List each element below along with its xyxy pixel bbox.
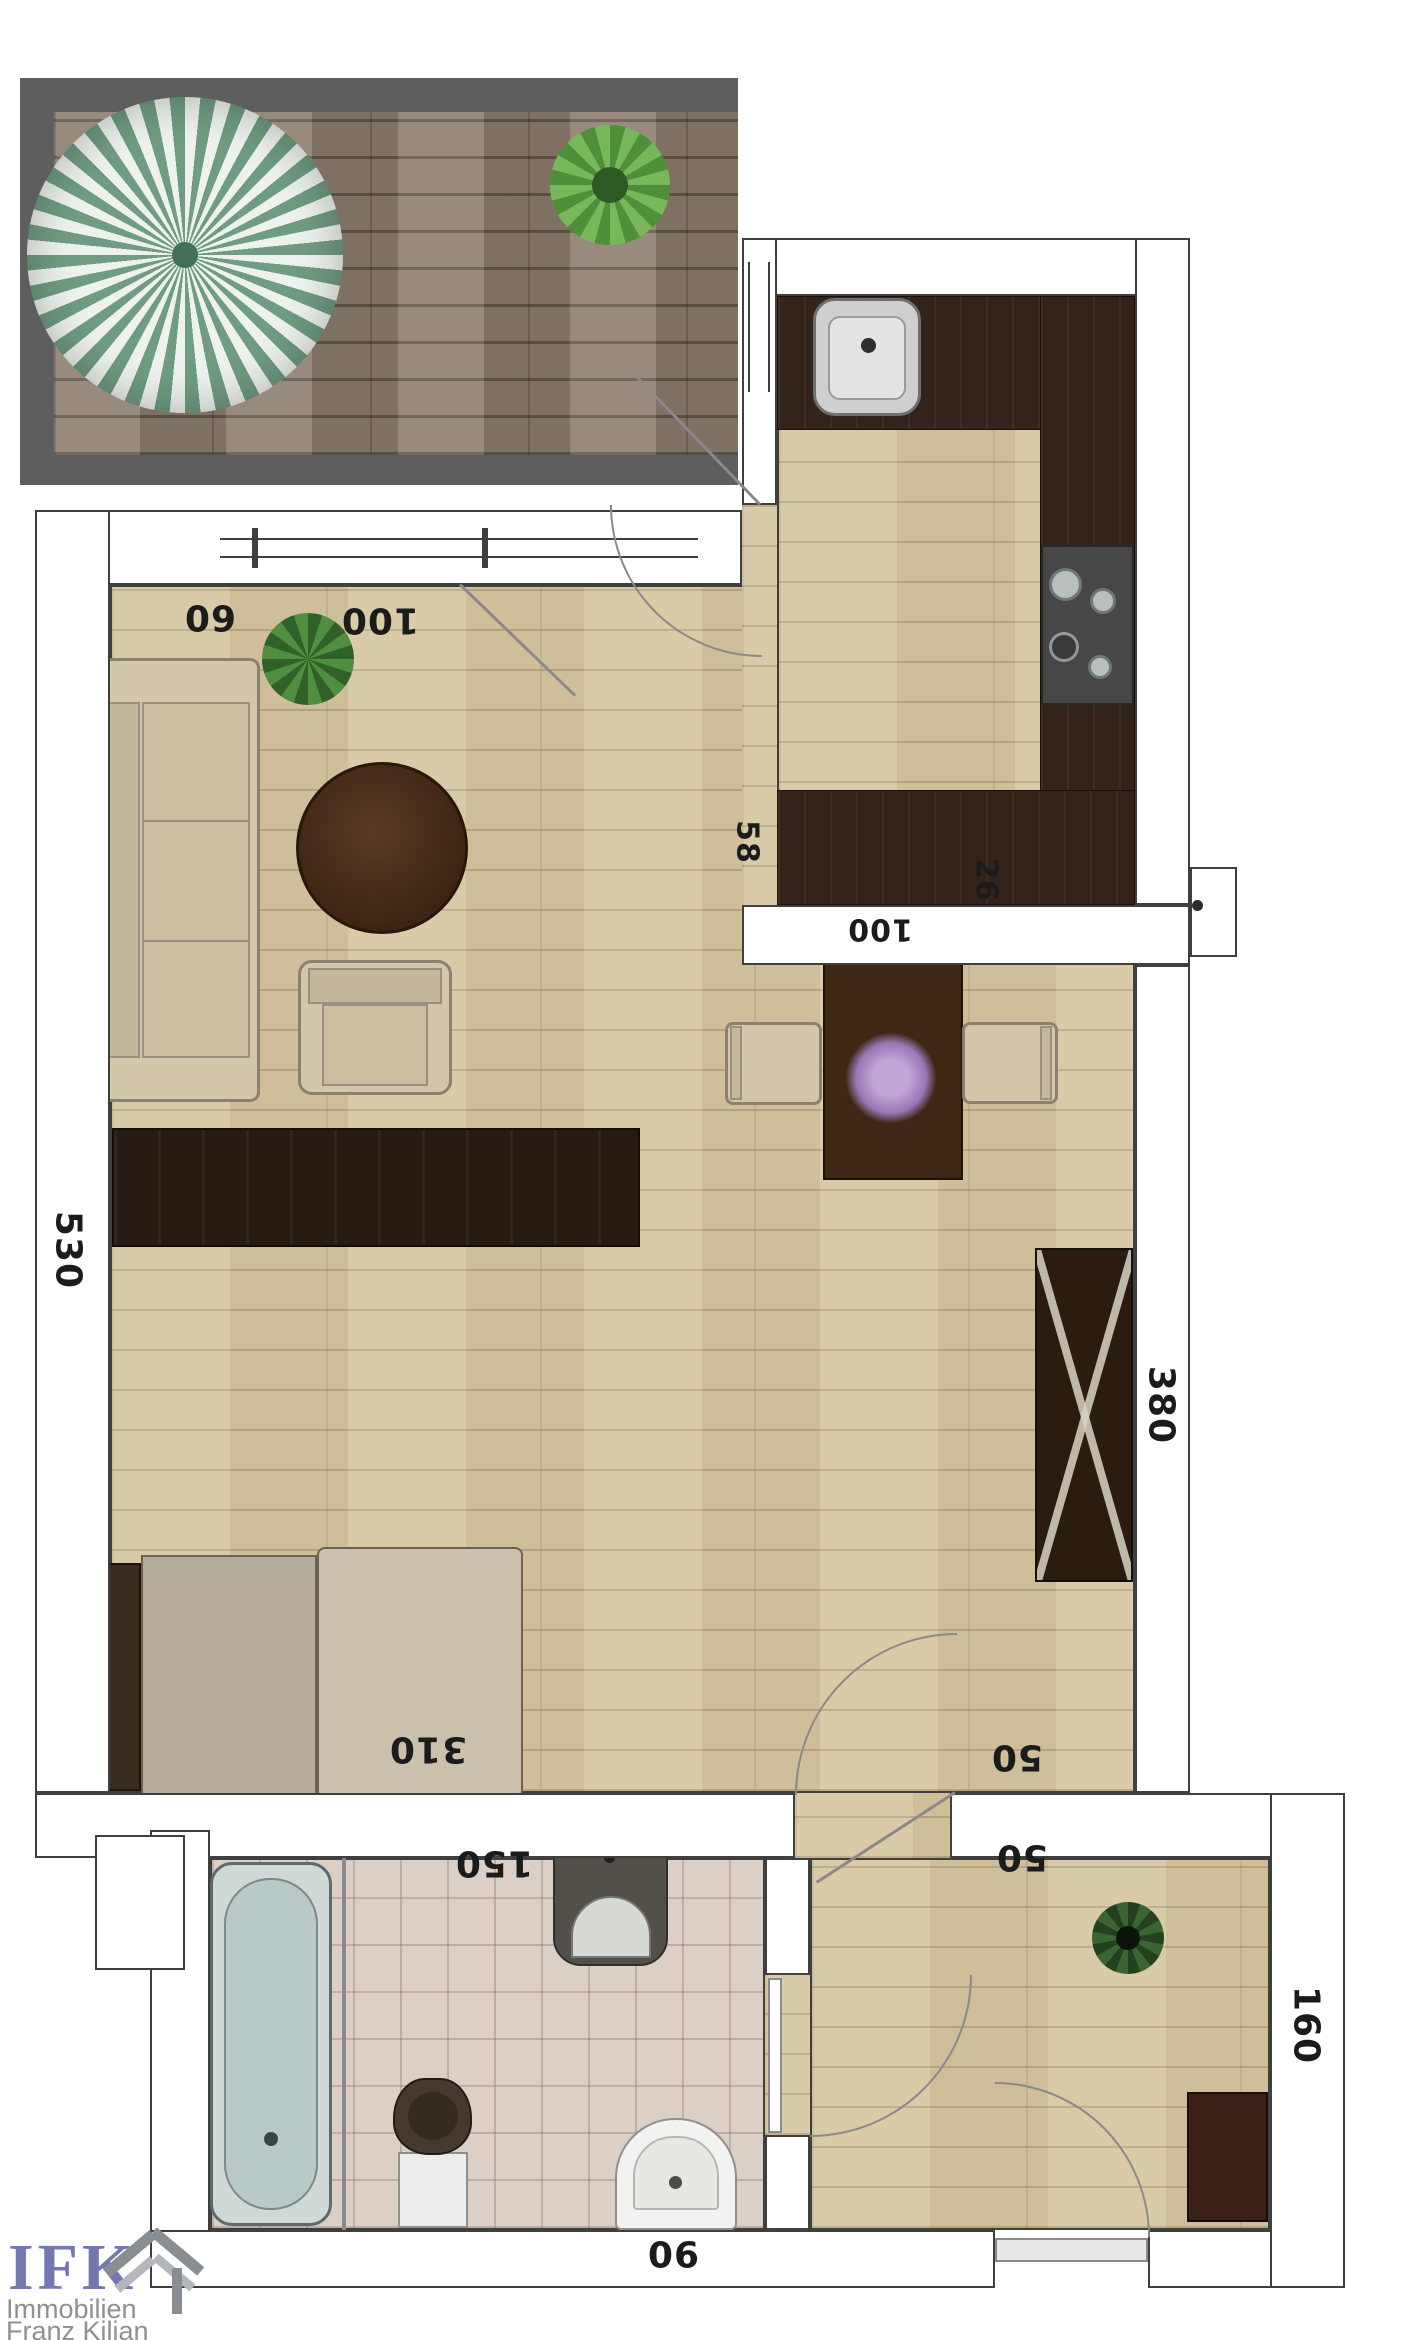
dim-label-100-kitchen: 100 [847,912,913,947]
dim-label-60: 60 [184,597,236,638]
dim-label-50-upper: 50 [991,1737,1043,1778]
burner-2 [1090,588,1116,614]
bed-mattress [141,1555,317,1797]
dim-label-530: 530 [48,1211,89,1289]
kitchen-wall-nib [1190,867,1237,957]
dim-label-310: 310 [389,1729,467,1770]
sofa-seat [142,702,250,1058]
kitchen-counter-bottom [777,790,1135,905]
wardrobe [1035,1248,1133,1582]
bathroom-faucet-dot [669,2176,682,2189]
sofa-cushion-line-1 [144,820,248,822]
dim-label-90: 90 [647,2233,699,2274]
door-pivot-dot [1192,900,1203,911]
sofa-cushion-line-2 [144,940,248,942]
hall-cabinet [1187,2092,1268,2222]
dim-label-50-lower: 50 [996,1837,1048,1878]
balcony-wall-bottom [20,455,738,485]
floorplan-canvas: 60 100 530 380 310 150 90 50 50 160 58 2… [0,0,1416,2340]
bath-partition-line [342,1858,346,2230]
burner-4 [1088,655,1112,679]
sideboard [112,1128,640,1247]
logo-line-franz-kilian: Franz Kilian [6,2316,149,2340]
bath-hall-wall-upper [765,1858,810,1975]
bathtub-basin [224,1878,318,2210]
cooktop [1041,545,1134,705]
bath-hall-wall-lower [765,2135,810,2230]
kitchen-window-glazing [748,262,770,392]
toilet-bowl [408,2092,458,2140]
dining-chair-left-back [730,1026,742,1100]
burner-1 [1049,568,1082,601]
dim-label-26: 26 [969,858,1004,902]
armchair-seat [322,1004,428,1086]
dim-label-160: 160 [1286,1986,1327,2064]
bathroom-niche [95,1835,185,1970]
kitchen-wall-bottom [742,905,1190,965]
armchair-back [308,968,442,1004]
kitchen-wall-east [1135,238,1190,905]
coffee-table [296,762,468,934]
bathroom-sink-basin [633,2136,719,2210]
hall-plant-center [1116,1926,1140,1950]
roof-chimney [172,2268,182,2314]
dim-label-58: 58 [730,820,765,864]
parasol-center [172,242,198,268]
kitchen-wall-top [742,238,1190,296]
sofa-back [106,702,140,1058]
burner-3 [1049,632,1079,662]
dim-label-150: 150 [455,1843,533,1884]
dim-label-100-top: 100 [341,600,419,641]
window-mullion-right [482,528,488,568]
bath-door-leaf [768,1978,782,2133]
entrance-door-leaf [995,2238,1148,2262]
toilet-tank [398,2152,468,2228]
living-hall-doorway-floor [795,1793,950,1858]
dim-label-380: 380 [1141,1366,1182,1444]
balcony-plant-center [592,167,628,203]
kitchen-faucet-dot [861,338,876,353]
bottom-wall-left [150,2230,995,2288]
table-flower [846,1033,936,1123]
window-mullion-left [252,528,258,568]
kitchen-sink-basin [828,316,906,400]
left-exterior-wall [35,510,110,1793]
dining-chair-right-back [1040,1026,1052,1100]
roof-bar-left [103,2230,156,2277]
bathtub-drain [264,2132,278,2146]
